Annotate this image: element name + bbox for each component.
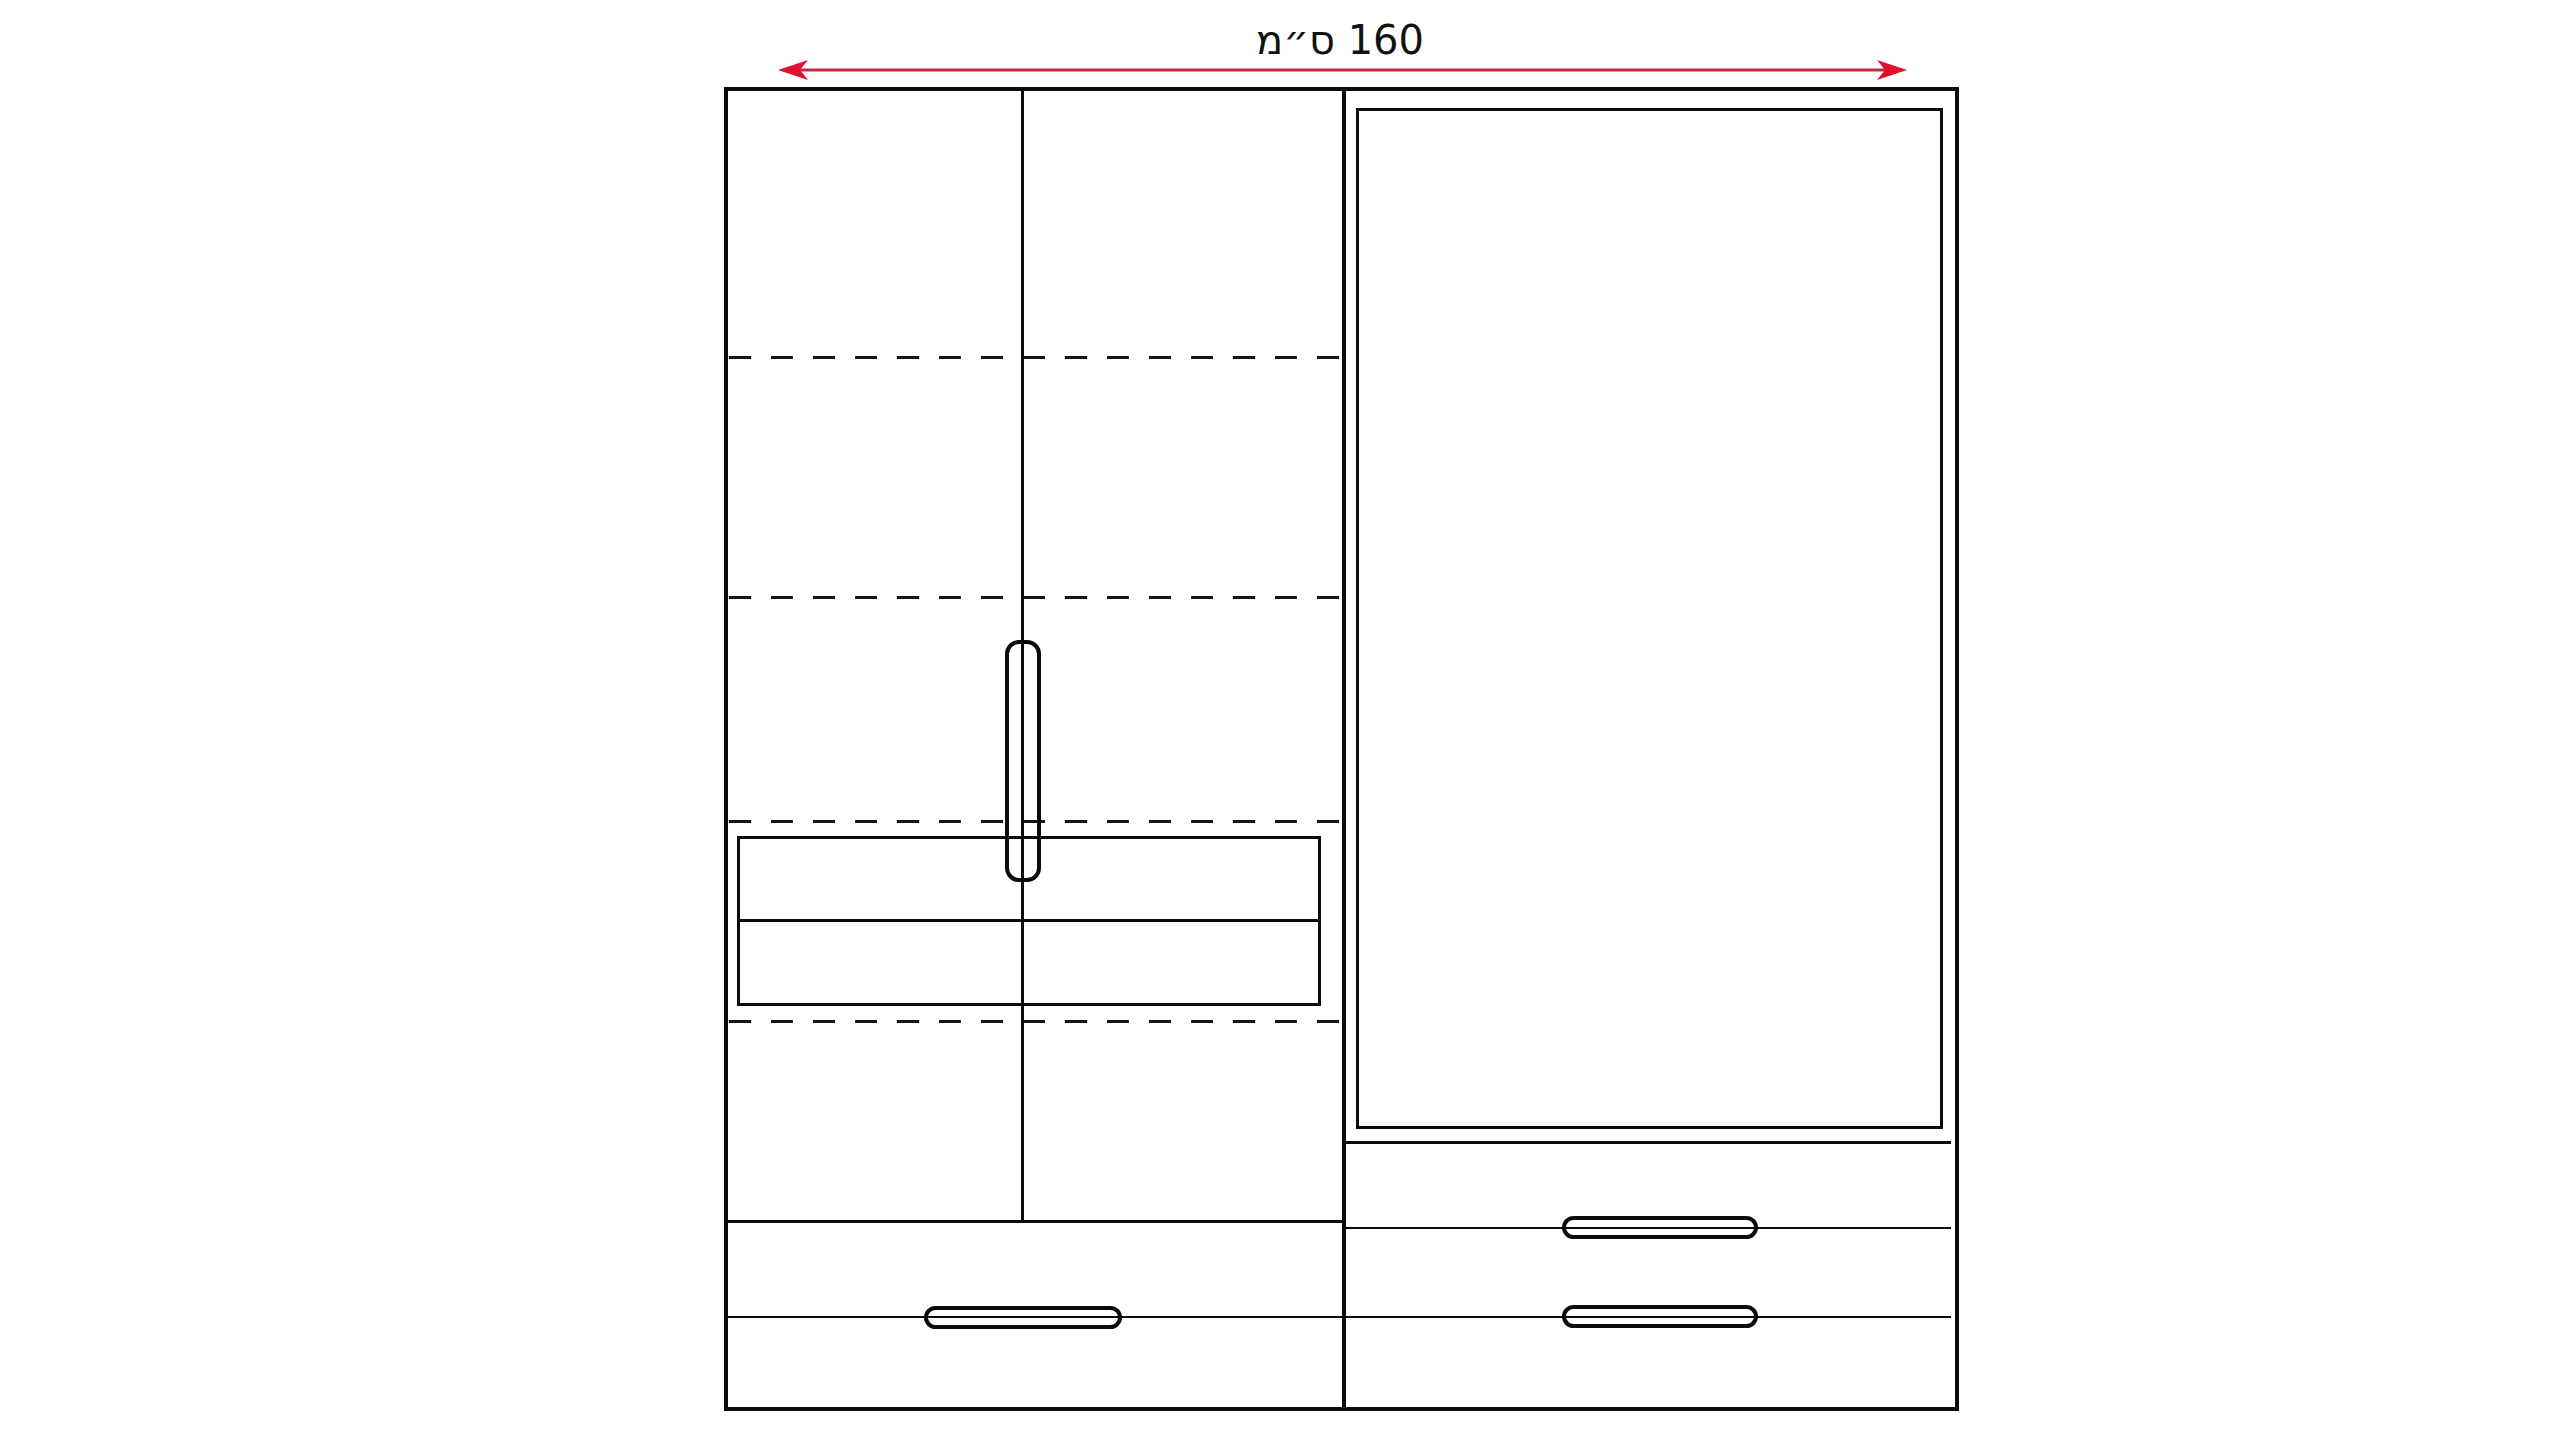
mirror-door-panel bbox=[1356, 108, 1943, 1129]
right-shelf-line bbox=[1346, 1141, 1951, 1144]
wardrobe-diagram: 160 ס״מ bbox=[0, 0, 2560, 1440]
shelf-dashed-line-1 bbox=[729, 356, 1342, 359]
left-drawer-top-line bbox=[728, 1220, 1342, 1223]
shelf-dashed-line-2 bbox=[729, 596, 1342, 599]
right-drawer-handle-1 bbox=[1562, 1216, 1758, 1239]
shelf-dashed-line-4 bbox=[729, 1020, 1342, 1023]
dimension-arrow bbox=[770, 55, 1915, 85]
right-drawer-handle-2 bbox=[1562, 1305, 1758, 1328]
left-drawer-handle bbox=[924, 1306, 1122, 1329]
left-doors-handle bbox=[1005, 640, 1041, 882]
inner-drawer-box-divider bbox=[740, 919, 1318, 922]
section-divider-line bbox=[1342, 90, 1346, 1408]
